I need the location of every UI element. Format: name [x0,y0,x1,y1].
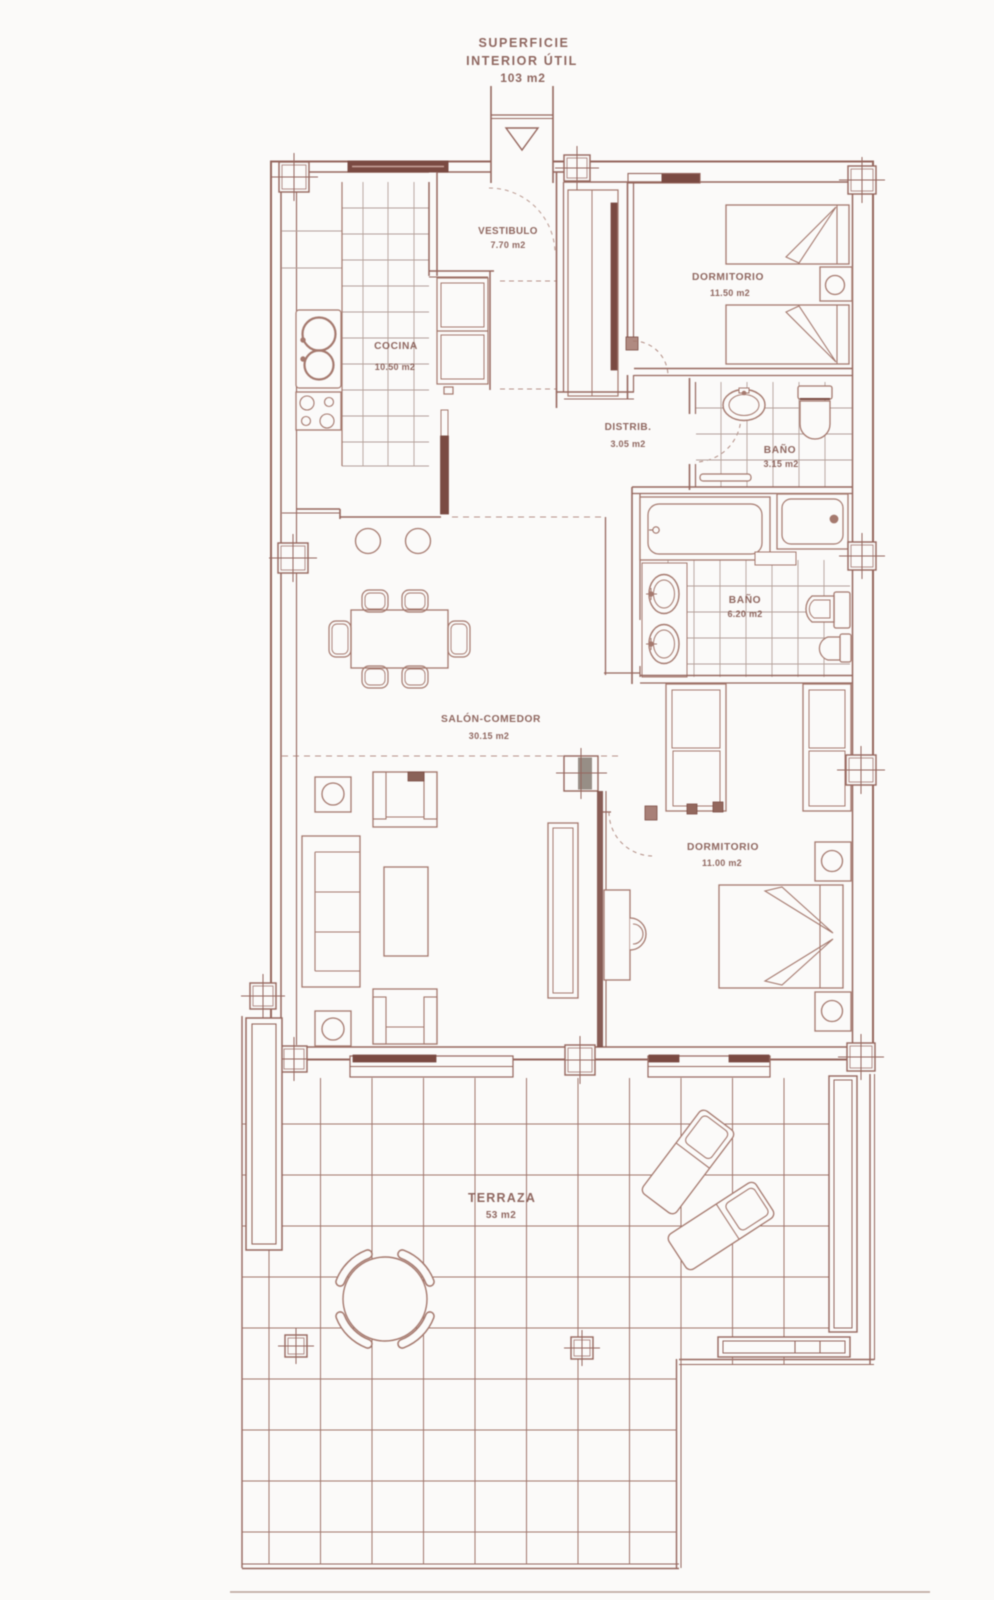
svg-text:TERRAZA: TERRAZA [468,1191,536,1205]
svg-text:SUPERFICIE: SUPERFICIE [478,36,569,50]
svg-text:6.20 m2: 6.20 m2 [727,609,762,619]
svg-text:11.00 m2: 11.00 m2 [702,858,742,868]
svg-text:30.15 m2: 30.15 m2 [469,731,509,741]
svg-text:SALÓN-COMEDOR: SALÓN-COMEDOR [441,712,541,725]
svg-text:INTERIOR ÚTIL: INTERIOR ÚTIL [466,53,578,68]
svg-text:BAÑO: BAÑO [764,443,796,456]
svg-text:DISTRIB.: DISTRIB. [605,422,652,433]
svg-text:103 m2: 103 m2 [500,71,546,85]
svg-text:BAÑO: BAÑO [729,593,761,606]
svg-text:DORMITORIO: DORMITORIO [692,272,764,283]
svg-text:VESTIBULO: VESTIBULO [478,226,538,237]
svg-text:10.50 m2: 10.50 m2 [375,362,415,372]
svg-text:53 m2: 53 m2 [486,1210,516,1221]
svg-text:DORMITORIO: DORMITORIO [687,842,759,853]
svg-text:3.15 m2: 3.15 m2 [763,459,798,469]
svg-text:COCINA: COCINA [374,341,418,352]
svg-text:11.50 m2: 11.50 m2 [710,288,750,298]
svg-text:7.70 m2: 7.70 m2 [490,240,525,250]
svg-text:3.05 m2: 3.05 m2 [610,439,645,449]
